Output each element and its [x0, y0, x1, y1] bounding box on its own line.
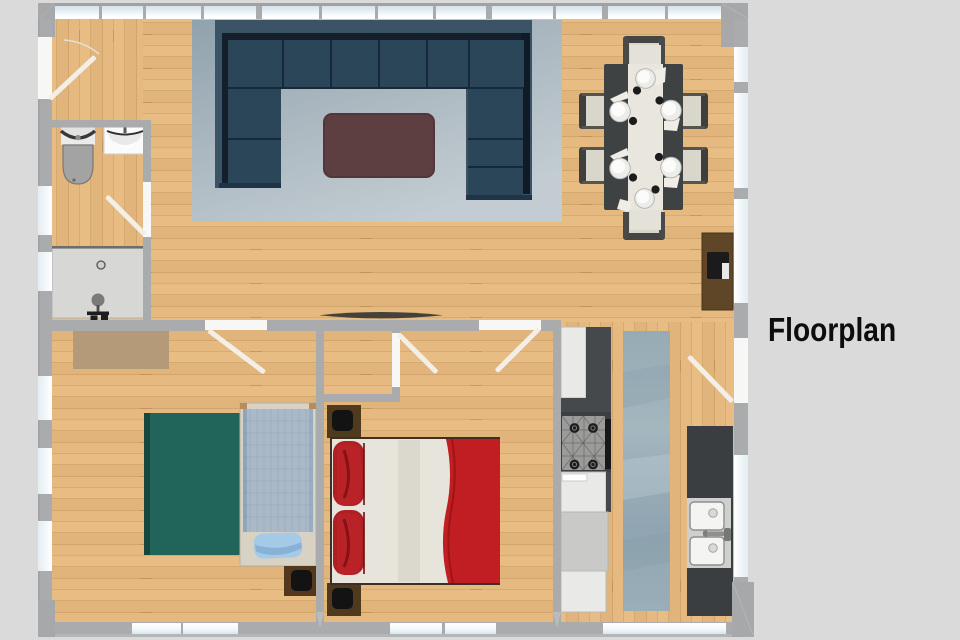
svg-text:Floorplan: Floorplan [768, 311, 896, 349]
